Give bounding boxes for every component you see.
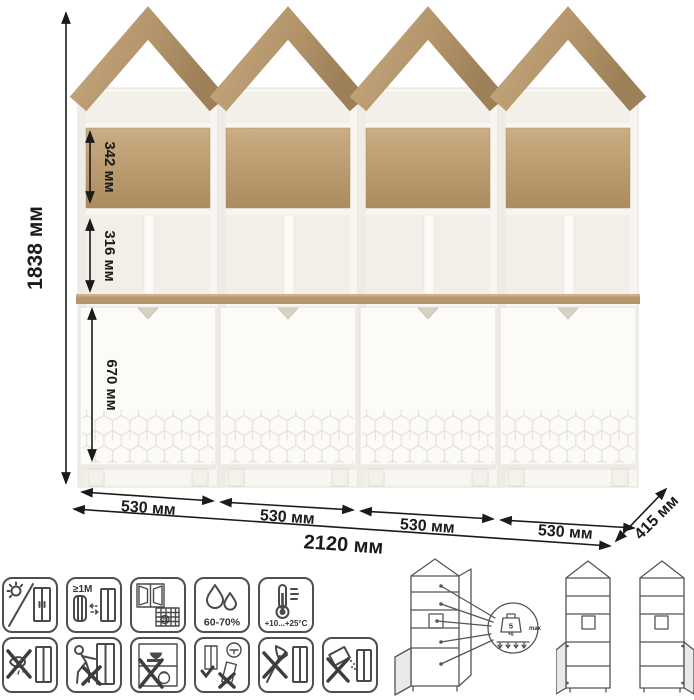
max-load-max-label: max: [529, 626, 542, 632]
door-unit-left-hinged: [556, 561, 610, 694]
no-sharp-tools-icon: [262, 641, 310, 689]
humidity-icon: 60-70%: [198, 581, 246, 629]
shelf-load-diagram: 5 kg max: [383, 556, 558, 700]
icon-no-direct-sunlight: [2, 577, 58, 633]
ventilate-room-icon: 21: [134, 581, 182, 629]
no-pushing-icon: [70, 641, 118, 689]
heater-distance-label: ≥1M: [73, 584, 92, 595]
shelf-unit-4-body: [496, 88, 640, 487]
icon-install-level-and-adjust: [194, 637, 250, 693]
icon-do-not-push-or-drag: [66, 637, 122, 693]
no-direct-sunlight-icon: [6, 581, 54, 629]
product-dimension-sheet: 1838 мм 342 мм 316 мм 670 мм 530 мм 530 …: [0, 0, 694, 700]
door-opening-diagram: [556, 556, 694, 700]
icon-no-sharp-tools: [258, 637, 314, 693]
icon-keep-distance-from-heaters: ≥1M: [66, 577, 122, 633]
dimension-label-width-4: 530 мм: [537, 522, 593, 543]
icon-ventilate-room: 21: [130, 577, 186, 633]
humidity-label: 60-70%: [204, 617, 241, 629]
icon-humidity-range: 60-70%: [194, 577, 250, 633]
house-shelving-unit-set: [76, 23, 640, 487]
main-illustration: 1838 мм 342 мм 316 мм 670 мм 530 мм 530 …: [0, 0, 694, 575]
icon-no-spilling-liquids: [322, 637, 378, 693]
max-load-unit: kg: [508, 631, 514, 636]
temperature-label: +10...+25°C: [265, 619, 308, 628]
shelf-unit-2-body: [216, 88, 360, 487]
heater-distance-icon: ≥1M: [70, 581, 118, 629]
dimension-label-height: 1838 мм: [24, 206, 47, 290]
dimension-label-total-width: 2120 мм: [303, 531, 384, 559]
temperature-icon: +10...+25°C: [262, 581, 310, 629]
dimension-label-bottom-section: 670 мм: [103, 359, 120, 410]
open-door-sketch: [395, 648, 411, 695]
dimension-label-top-section: 342 мм: [101, 141, 118, 192]
no-wet-cleaning-icon: [6, 641, 54, 689]
ventilate-calendar-day: 21: [161, 617, 169, 624]
max-load-badge: 5 kg max: [488, 603, 542, 653]
dimension-label-middle-section: 316 мм: [101, 230, 118, 281]
max-load-value: 5: [509, 622, 513, 631]
level-installation-icon: [198, 641, 246, 689]
icon-no-wet-abrasive-cleaning: [2, 637, 58, 693]
load-arrows: [437, 586, 495, 664]
shelf-unit-1-body: [76, 88, 220, 487]
icon-temperature-range: +10...+25°C: [258, 577, 314, 633]
icon-no-heavy-objects-inside: [130, 637, 186, 693]
door-unit-right-hinged: [640, 561, 694, 694]
shelf-unit-3-body: [356, 88, 500, 487]
no-heavy-objects-icon: [134, 641, 182, 689]
no-spilling-icon: [326, 641, 374, 689]
